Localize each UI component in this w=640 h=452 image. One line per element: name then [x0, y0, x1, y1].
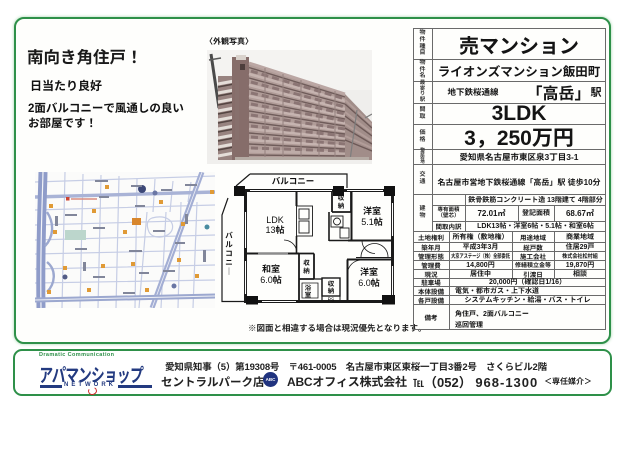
svg-text:13帖: 13帖 [265, 225, 284, 235]
svg-text:PS: PS [328, 298, 335, 304]
svg-text:浴室: 浴室 [305, 284, 312, 299]
svg-text:和室: 和室 [262, 264, 280, 274]
svg-text:洋室: 洋室 [360, 267, 378, 277]
svg-text:6.0帖: 6.0帖 [260, 275, 282, 285]
svg-text:LDK: LDK [266, 215, 284, 225]
svg-text:収納: 収納 [328, 280, 335, 295]
svg-text:収納: 収納 [338, 194, 345, 210]
svg-text:5.1帖: 5.1帖 [361, 217, 383, 227]
svg-text:6.0帖: 6.0帖 [358, 278, 380, 288]
svg-text:洋室: 洋室 [363, 206, 381, 216]
svg-text:バルコニー: バルコニー [272, 176, 315, 186]
svg-text:バルコニ｜: バルコニ｜ [225, 231, 233, 276]
svg-text:収納: 収納 [303, 259, 310, 275]
